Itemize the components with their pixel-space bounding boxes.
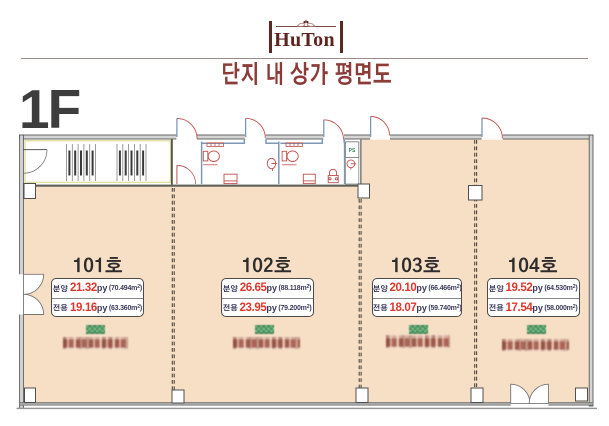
svg-text:PS: PS xyxy=(349,148,356,154)
